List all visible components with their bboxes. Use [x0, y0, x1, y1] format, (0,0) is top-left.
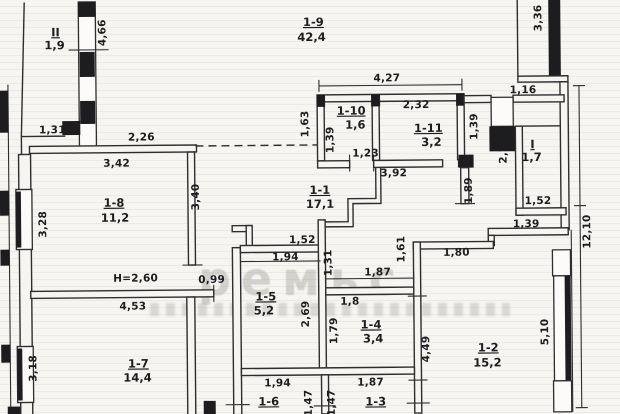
dim-1-87-b: 1,87 [357, 376, 384, 388]
wall-segment [326, 287, 414, 295]
wall-segment [318, 161, 350, 168]
dim-1-80: 1,80 [443, 247, 470, 259]
dim-2-26: 2,26 [128, 131, 155, 143]
dim-4-53: 4,53 [119, 300, 146, 312]
room-label-I: I [530, 137, 534, 151]
wall-segment [457, 101, 465, 160]
room-label-1-5: 1-5 [255, 289, 276, 303]
dim-1-31-b: 1,31 [322, 249, 334, 276]
room-area-1-5: 5,2 [254, 303, 274, 317]
wall-segment [565, 276, 572, 381]
dim-4-49: 4,49 [420, 336, 432, 363]
wall-segment [16, 192, 21, 248]
wall-segment [80, 101, 95, 124]
dim-1-89: 1,89 [463, 177, 475, 204]
dimension-line [319, 85, 462, 86]
dim-3-18: 3,18 [27, 355, 39, 382]
dim-1-52-b: 1,52 [289, 234, 316, 246]
dim-1-39-c: 1,39 [513, 218, 540, 230]
room-area-1-10: 1,6 [345, 118, 365, 132]
wall-segment [80, 52, 95, 77]
plan-group: 1-9 42,4 1-10 1,6 1-11 3,2 I 1,7 II 1,9 … [0, 0, 595, 414]
dim-2-20: 2,20 [497, 137, 509, 164]
wall-segment [517, 0, 518, 76]
wall-segment [0, 91, 8, 133]
dim-2-69: 2,69 [300, 301, 312, 328]
wall-segment [78, 2, 95, 17]
wall-segment [516, 208, 566, 215]
wall-segment [29, 145, 196, 153]
room-area-1-11: 3,2 [421, 135, 441, 149]
dim-1-31: 1,31 [39, 124, 66, 136]
dim-1-79: 1,79 [328, 317, 340, 344]
wall-segment [0, 191, 9, 216]
window [552, 250, 570, 276]
wall-segment [459, 155, 474, 168]
room-label-II: II [51, 25, 60, 39]
wall-segment [232, 248, 241, 414]
dim-1-23: 1,23 [352, 147, 379, 159]
room-area-1-9: 42,4 [297, 30, 325, 44]
wall-segment [325, 167, 376, 221]
dim-1-47-b: 1,47 [326, 389, 338, 414]
dim-1-39-b: 1,39 [468, 113, 480, 140]
room-label-1-6: 1-6 [258, 394, 279, 408]
room-area-1-8: 11,2 [101, 211, 129, 225]
dim-1-94-b: 1,94 [264, 377, 291, 389]
dim-1-8: 1,8 [340, 296, 359, 308]
dashed-boundary [195, 145, 317, 146]
wall-segment [317, 94, 464, 102]
room-area-II: 1,9 [44, 38, 64, 52]
dim-1-52-a: 1,52 [525, 195, 552, 207]
room-label-1-2: 1-2 [478, 340, 499, 354]
dim-1-94-a: 1,94 [272, 251, 299, 263]
dim-1-16: 1,16 [510, 84, 537, 96]
dim-12-10: 12,10 [581, 214, 593, 248]
room-label-1-4: 1-4 [361, 317, 382, 331]
wall-segment [548, 0, 561, 78]
window [554, 381, 572, 412]
wall-segment [464, 95, 491, 102]
balcony-door [491, 97, 513, 126]
dim-4-27: 4,27 [373, 72, 400, 84]
dim-1-63: 1,63 [299, 111, 311, 138]
dim-1-61: 1,61 [395, 236, 407, 263]
wall-segment [456, 94, 464, 106]
room-label-1-3: 1-3 [365, 394, 386, 408]
dim-4-66: 4,66 [96, 19, 108, 46]
room-label-1-11: 1-11 [414, 121, 443, 135]
dim-1-87-a: 1,87 [364, 266, 391, 278]
dim-3-40: 3,40 [190, 184, 202, 211]
wall-segment [515, 126, 523, 215]
dim-2-32: 2,32 [403, 99, 430, 111]
wall-segment [317, 95, 325, 107]
wall-segment [187, 297, 196, 414]
ceiling-height-note: H=2,60 [113, 272, 158, 284]
dim-0-99: 0,99 [198, 274, 225, 286]
dim-1-39-a: 1,39 [324, 126, 336, 153]
floor-plan-sheet: ремьс [0, 0, 620, 414]
wall-segment [204, 401, 216, 414]
wall-segment [246, 226, 252, 248]
room-area-I: 1,7 [521, 150, 541, 164]
room-label-1-8: 1-8 [104, 196, 125, 210]
dim-3-92: 3,92 [380, 167, 407, 179]
wall-segment [20, 2, 25, 136]
dim-3-36: 3,36 [532, 5, 544, 32]
room-area-1-4: 3,4 [363, 331, 383, 345]
room-area-1-7: 14,4 [123, 370, 151, 384]
room-label-1-1: 1-1 [309, 183, 330, 197]
room-label-1-10: 1-10 [337, 104, 366, 118]
wall-segment [413, 242, 421, 413]
dim-5-10: 5,10 [539, 319, 551, 346]
room-area-1-1: 17,1 [306, 197, 334, 211]
wall-segment [371, 94, 380, 106]
wall-segment [1, 345, 10, 363]
dim-1-47-a: 1,47 [303, 390, 315, 414]
wall-segment [17, 349, 22, 401]
wall-segment [0, 250, 9, 266]
dim-3-42: 3,42 [103, 158, 130, 170]
room-label-1-7: 1-7 [128, 356, 149, 370]
wall-segment [8, 85, 11, 414]
room-label-1-9: 1-9 [303, 15, 324, 29]
dim-3-28: 3,28 [37, 211, 49, 238]
wall-segment [374, 160, 443, 168]
floor-plan-drawing: 1-9 42,4 1-10 1,6 1-11 3,2 I 1,7 II 1,9 … [0, 0, 620, 414]
room-area-1-2: 15,2 [473, 355, 501, 369]
